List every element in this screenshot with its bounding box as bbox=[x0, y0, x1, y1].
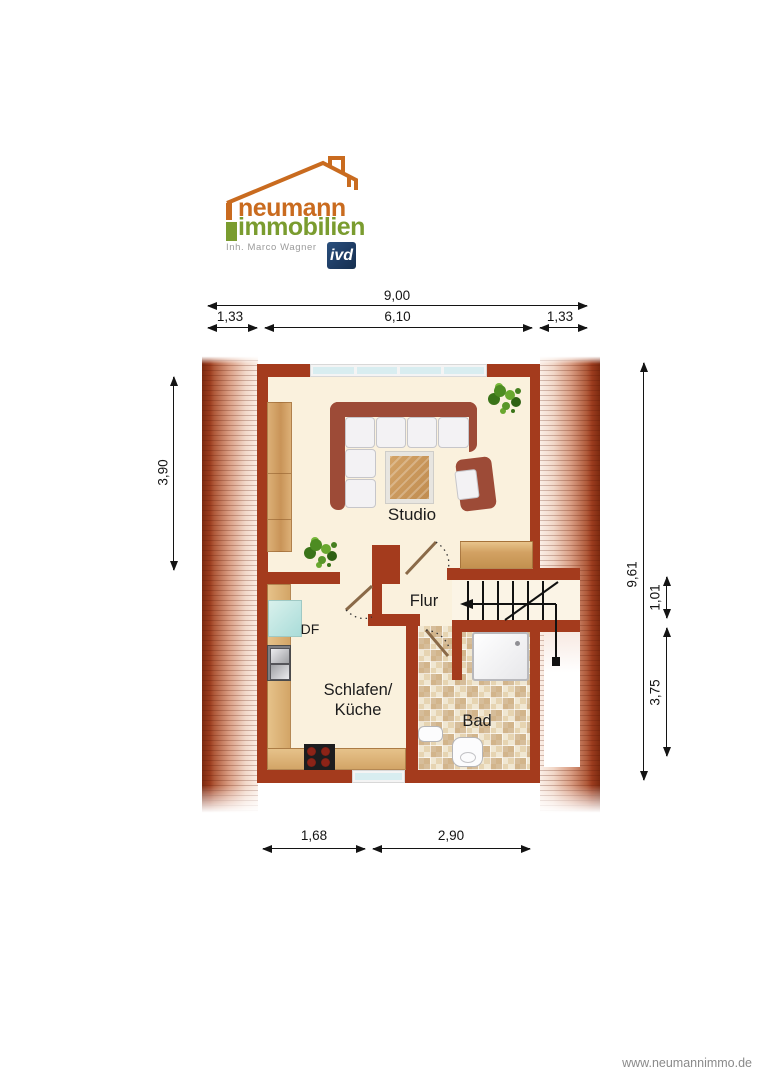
roof-slope-left bbox=[202, 355, 258, 822]
dim-line-inner-width bbox=[265, 327, 532, 328]
wall-studio-south-a bbox=[268, 572, 340, 584]
dim-line-bottom-left bbox=[263, 848, 365, 849]
floor-plan-page: neumann immobilien Inh. Marco Wagner ivd… bbox=[0, 0, 763, 1080]
dim-label-bottom-left: 1,68 bbox=[284, 828, 344, 843]
dim-label-left-height: 3,90 bbox=[156, 443, 171, 503]
dim-label-bottom-right: 2,90 bbox=[421, 828, 481, 843]
logo-orange-bar bbox=[226, 203, 232, 220]
room-label-bad: Bad bbox=[427, 711, 527, 731]
plant-icon bbox=[310, 539, 322, 551]
stove bbox=[304, 744, 335, 770]
room-label-line1: Schlafen/ bbox=[324, 681, 393, 699]
door-studio bbox=[398, 533, 456, 583]
dim-label-total-height: 9,61 bbox=[625, 545, 640, 605]
dim-line-stair-depth bbox=[666, 577, 667, 618]
window-top bbox=[310, 364, 487, 377]
dim-label-lower-height: 3,75 bbox=[648, 663, 663, 723]
window-pane bbox=[355, 773, 402, 780]
dim-line-right-offset bbox=[540, 327, 587, 328]
room-label-flur: Flur bbox=[374, 591, 474, 611]
wall-bottom-right bbox=[405, 770, 540, 783]
armchair bbox=[455, 456, 497, 512]
dim-label-inner-width: 6,10 bbox=[370, 309, 425, 324]
window-bottom bbox=[352, 770, 405, 783]
toilet bbox=[452, 737, 483, 767]
ivd-badge: ivd bbox=[327, 242, 356, 269]
dim-line-bottom-right bbox=[373, 848, 530, 849]
window-pane bbox=[357, 367, 398, 374]
dim-line-left-height bbox=[173, 377, 174, 570]
dim-line-lower-height bbox=[666, 628, 667, 756]
logo-green-bar bbox=[226, 222, 237, 241]
owner-line: Inh. Marco Wagner bbox=[226, 242, 317, 253]
dim-label-right-offset: 1,33 bbox=[535, 309, 585, 324]
company-logo: neumann immobilien Inh. Marco Wagner ivd bbox=[210, 152, 430, 277]
kitchen-counter-bottom bbox=[267, 748, 406, 770]
dim-label-left-offset: 1,33 bbox=[205, 309, 255, 324]
wall-stair-north bbox=[447, 568, 580, 580]
room-label-line2: Küche bbox=[335, 701, 382, 719]
website-link: www.neumannimmo.de bbox=[622, 1056, 752, 1070]
dim-label-total-width: 9,00 bbox=[367, 288, 427, 303]
window-pane bbox=[313, 367, 354, 374]
chimney-block bbox=[372, 545, 400, 584]
kitchen-sink bbox=[267, 645, 291, 681]
roof-window-label: DF bbox=[292, 619, 328, 639]
roof-fade-top bbox=[202, 355, 600, 364]
plant-icon bbox=[494, 385, 506, 397]
floor-plan: DF Studio Flur Schlafen/ Küche Bad bbox=[202, 355, 600, 822]
dim-line-total-width bbox=[208, 305, 587, 306]
shower bbox=[472, 632, 529, 681]
brand-name-bottom: immobilien bbox=[238, 218, 365, 237]
sideboard bbox=[460, 541, 533, 569]
room-label-schlafen-kueche: Schlafen/ Küche bbox=[288, 680, 428, 720]
wardrobe bbox=[267, 402, 292, 552]
dim-label-stair-depth: 1,01 bbox=[648, 568, 663, 628]
dim-line-total-height bbox=[643, 363, 644, 780]
room-label-studio: Studio bbox=[332, 505, 492, 525]
wall-right-upper bbox=[530, 364, 540, 568]
coffee-table bbox=[386, 452, 433, 503]
window-pane bbox=[400, 367, 441, 374]
door-bath bbox=[418, 620, 460, 666]
shower-drain bbox=[515, 641, 520, 646]
roof-fade-bottom bbox=[202, 785, 600, 822]
wall-bottom-left bbox=[257, 770, 352, 783]
window-pane bbox=[444, 367, 485, 374]
dim-line-left-offset bbox=[208, 327, 257, 328]
